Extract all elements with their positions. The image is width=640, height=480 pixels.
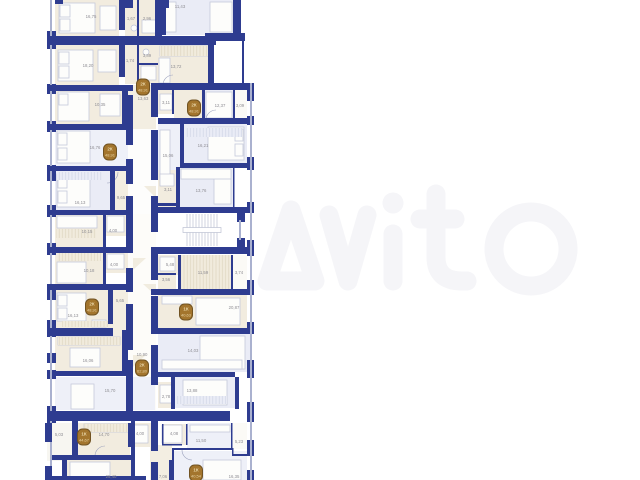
- svg-text:3,56: 3,56: [162, 277, 171, 282]
- svg-text:4,00: 4,00: [136, 431, 145, 436]
- svg-text:5,48: 5,48: [166, 262, 175, 267]
- svg-text:48,91: 48,91: [189, 109, 200, 114]
- svg-text:4,00: 4,00: [109, 228, 118, 233]
- svg-text:1К: 1К: [193, 468, 199, 473]
- svg-text:13,63: 13,63: [138, 96, 149, 101]
- svg-text:1,67: 1,67: [127, 16, 136, 21]
- svg-text:3,89: 3,89: [143, 53, 152, 58]
- svg-text:4,08: 4,08: [170, 431, 179, 436]
- svg-text:48,91: 48,91: [138, 88, 149, 93]
- svg-text:2К: 2К: [107, 147, 113, 152]
- svg-text:25,40: 25,40: [106, 474, 117, 479]
- svg-text:1К: 1К: [81, 432, 87, 437]
- svg-text:9,65: 9,65: [117, 195, 126, 200]
- svg-text:40,63: 40,63: [181, 313, 192, 318]
- svg-text:62,80: 62,80: [137, 369, 148, 374]
- svg-text:10,18: 10,18: [84, 268, 95, 273]
- svg-text:3,11: 3,11: [164, 187, 173, 192]
- svg-text:13,72: 13,72: [171, 64, 182, 69]
- svg-text:10,35: 10,35: [95, 102, 106, 107]
- svg-text:13,76: 13,76: [196, 188, 207, 193]
- svg-text:13,88: 13,88: [187, 388, 198, 393]
- svg-text:4,00: 4,00: [110, 262, 119, 267]
- svg-text:1,74: 1,74: [126, 58, 135, 63]
- svg-text:14,03: 14,03: [188, 348, 199, 353]
- svg-text:5,23: 5,23: [235, 439, 244, 444]
- svg-text:7,06: 7,06: [159, 474, 168, 479]
- svg-text:16,13: 16,13: [75, 200, 86, 205]
- svg-text:12,37: 12,37: [215, 103, 226, 108]
- svg-text:1К: 1К: [183, 307, 189, 312]
- svg-text:3,11: 3,11: [162, 100, 171, 105]
- svg-text:16,13: 16,13: [68, 313, 79, 318]
- svg-text:2К: 2К: [191, 103, 197, 108]
- svg-text:3,09: 3,09: [236, 103, 245, 108]
- svg-text:16,75: 16,75: [86, 14, 97, 19]
- svg-text:11,59: 11,59: [198, 270, 209, 275]
- svg-text:2,96: 2,96: [143, 16, 152, 21]
- svg-text:2,78: 2,78: [162, 394, 171, 399]
- svg-text:48,91: 48,91: [87, 308, 98, 313]
- svg-text:2К: 2К: [89, 302, 95, 307]
- svg-text:11,43: 11,43: [175, 4, 186, 9]
- svg-text:14,70: 14,70: [99, 432, 110, 437]
- svg-text:40,54: 40,54: [191, 474, 202, 479]
- svg-text:18,20: 18,20: [83, 63, 94, 68]
- svg-text:10,90: 10,90: [137, 352, 148, 357]
- svg-text:10,15: 10,15: [82, 229, 93, 234]
- svg-text:2К: 2К: [139, 363, 145, 368]
- svg-text:20,87: 20,87: [229, 305, 240, 310]
- svg-text:48,91: 48,91: [105, 153, 116, 158]
- svg-text:15,06: 15,06: [163, 153, 174, 158]
- svg-text:16,76: 16,76: [90, 145, 101, 150]
- svg-text:15,70: 15,70: [105, 388, 116, 393]
- svg-text:16,06: 16,06: [83, 358, 94, 363]
- svg-text:44,67: 44,67: [79, 438, 90, 443]
- svg-text:11,50: 11,50: [196, 438, 207, 443]
- svg-text:2К: 2К: [140, 82, 146, 87]
- svg-text:5,03: 5,03: [55, 432, 64, 437]
- svg-text:16,35: 16,35: [229, 474, 240, 479]
- svg-text:5,65: 5,65: [116, 298, 125, 303]
- svg-text:16,21: 16,21: [198, 143, 209, 148]
- svg-text:3,74: 3,74: [235, 270, 244, 275]
